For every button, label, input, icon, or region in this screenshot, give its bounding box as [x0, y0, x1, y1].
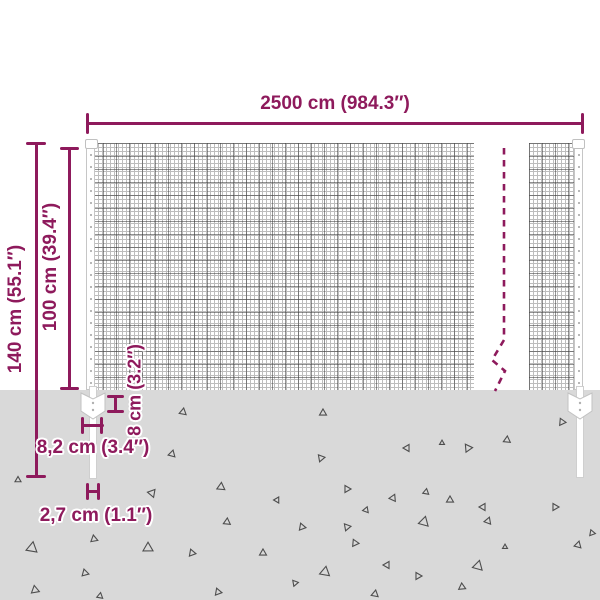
total-height-dimension-label: 140 cm (55.1″): [5, 245, 27, 373]
fence-dimension-diagram: 2500 cm (984.3″) 140 cm (55.1″) 100 cm (…: [0, 0, 600, 600]
post-width-tick-right: [100, 417, 103, 434]
total-height-tick-bottom: [26, 475, 46, 478]
mesh-height-tick-bottom: [60, 387, 79, 390]
fence-post-right: [574, 141, 583, 390]
total-height-dimension-line: [35, 142, 38, 478]
mesh-height-dimension-line: [68, 147, 71, 390]
anchor-depth-dimension-label: 8 cm (3.2″): [125, 344, 146, 436]
fence-mesh-panel-left: [90, 143, 474, 390]
anchor-depth-tick-top: [107, 395, 124, 398]
width-dimension-label: 2500 cm (984.3″): [260, 93, 410, 115]
fence-mesh-panel-right: [529, 143, 580, 390]
mesh-height-dimension-label: 100 cm (39.4″): [40, 203, 62, 331]
width-dimension-tick-left: [86, 113, 89, 134]
fence-post-left: [86, 141, 95, 390]
mesh-height-tick-top: [60, 147, 79, 150]
spike-width-tick-left: [86, 483, 89, 500]
spike-width-tick-right: [97, 483, 100, 500]
width-dimension-line: [88, 122, 583, 125]
post-ground-spike-left: [89, 386, 97, 479]
total-height-tick-top: [26, 142, 46, 145]
anchor-depth-tick-bottom: [107, 410, 124, 413]
post-width-tick-left: [81, 417, 84, 434]
post-cap-right: [572, 139, 585, 149]
spike-width-dimension-label: 2,7 cm (1.1″): [40, 505, 153, 527]
post-ground-spike-right: [576, 386, 584, 478]
post-width-dimension-label: 8,2 cm (3.4″): [37, 437, 150, 459]
width-dimension-tick-right: [581, 113, 584, 134]
post-cap-left: [85, 139, 98, 149]
